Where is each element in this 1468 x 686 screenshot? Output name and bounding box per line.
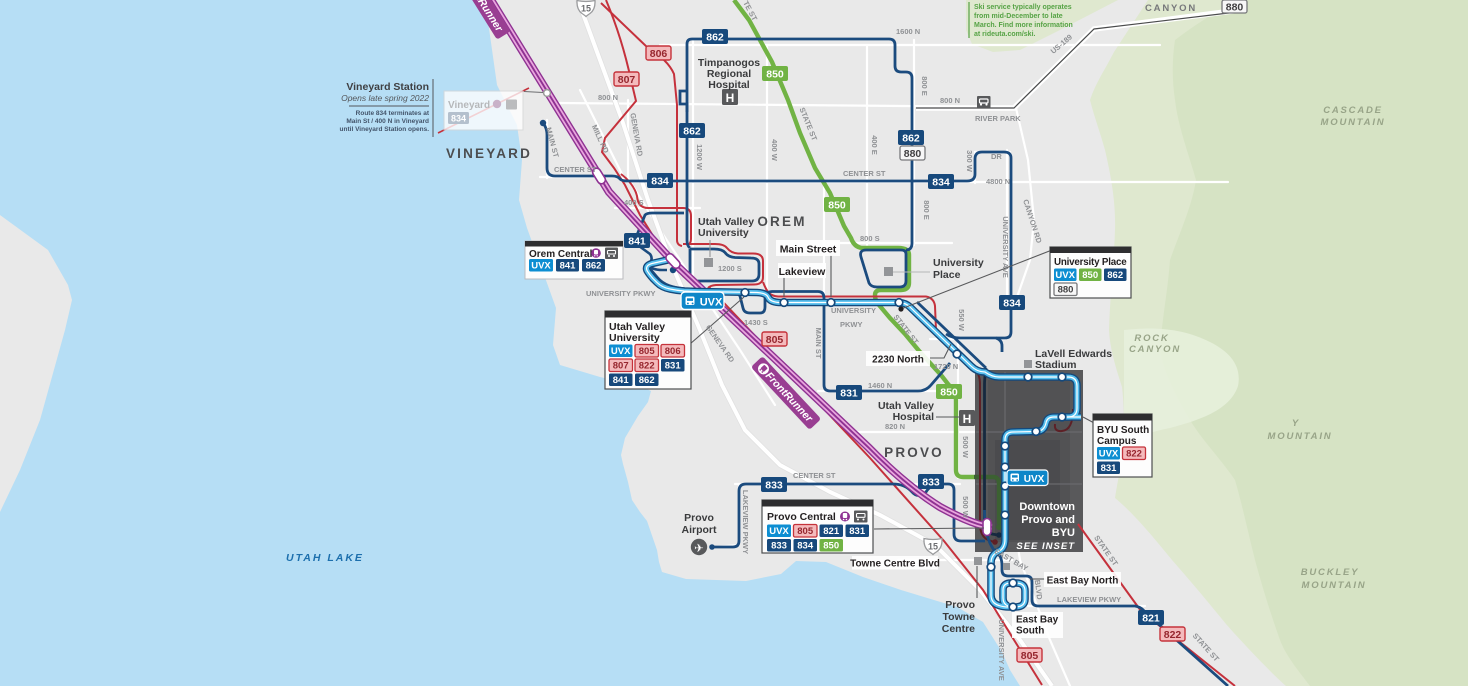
svg-text:Stadium: Stadium: [1035, 359, 1076, 371]
svg-text:850: 850: [828, 200, 846, 212]
svg-text:Provo: Provo: [945, 599, 975, 611]
svg-text:Lakeview: Lakeview: [779, 266, 827, 278]
svg-text:SEE INSET: SEE INSET: [1016, 541, 1075, 552]
svg-text:833: 833: [771, 541, 787, 552]
svg-text:1460 N: 1460 N: [868, 381, 892, 390]
svg-text:University: University: [698, 227, 749, 239]
svg-text:CANYON: CANYON: [1129, 344, 1181, 355]
svg-text:862: 862: [706, 32, 724, 44]
svg-text:850: 850: [766, 69, 784, 81]
svg-text:833: 833: [922, 477, 940, 489]
svg-text:834: 834: [451, 114, 466, 124]
svg-text:LAKEVIEW PKWY: LAKEVIEW PKWY: [1057, 595, 1121, 604]
svg-text:841: 841: [613, 375, 630, 386]
svg-text:Hospital: Hospital: [708, 79, 750, 91]
svg-text:from mid-December to late: from mid-December to late: [974, 13, 1063, 20]
svg-text:850: 850: [1082, 270, 1098, 281]
svg-text:Airport: Airport: [682, 524, 718, 536]
svg-text:821: 821: [823, 526, 840, 537]
svg-text:15: 15: [581, 4, 591, 14]
svg-text:805: 805: [766, 334, 784, 346]
svg-text:880: 880: [1058, 285, 1074, 296]
svg-text:400 E: 400 E: [870, 135, 879, 155]
svg-text:H: H: [726, 91, 735, 105]
svg-text:822: 822: [1126, 449, 1142, 460]
svg-text:850: 850: [823, 541, 839, 552]
svg-text:831: 831: [849, 526, 866, 537]
svg-text:Place: Place: [933, 269, 961, 281]
svg-text:UNIVERSITY PKWY: UNIVERSITY PKWY: [586, 289, 655, 298]
svg-text:Route 834 terminates at: Route 834 terminates at: [356, 110, 430, 117]
svg-text:South: South: [1016, 626, 1044, 637]
svg-text:UVX: UVX: [1099, 449, 1119, 460]
svg-text:UVX: UVX: [611, 346, 631, 357]
svg-text:834: 834: [797, 541, 814, 552]
svg-text:806: 806: [650, 48, 668, 60]
svg-text:DR: DR: [991, 152, 1002, 161]
svg-text:BYU South: BYU South: [1097, 425, 1149, 436]
svg-text:805: 805: [639, 346, 656, 357]
svg-text:862: 862: [683, 126, 701, 138]
svg-text:ROCK: ROCK: [1134, 333, 1169, 344]
svg-text:834: 834: [651, 176, 669, 188]
svg-text:831: 831: [840, 388, 858, 400]
svg-text:Opens late spring 2022: Opens late spring 2022: [341, 93, 429, 103]
svg-text:CENTER ST: CENTER ST: [793, 471, 836, 480]
svg-text:UNIVERSITY AVE: UNIVERSITY AVE: [1001, 216, 1010, 278]
svg-text:841: 841: [560, 261, 577, 272]
svg-text:807: 807: [613, 361, 629, 372]
svg-text:Towne: Towne: [943, 611, 976, 623]
svg-text:862: 862: [586, 261, 602, 272]
svg-text:500 W: 500 W: [961, 436, 970, 459]
svg-text:Campus: Campus: [1097, 436, 1137, 447]
svg-text:Provo: Provo: [684, 512, 714, 524]
svg-text:Downtown: Downtown: [1019, 501, 1075, 513]
svg-text:PKWY: PKWY: [840, 320, 863, 329]
svg-text:862: 862: [902, 133, 920, 145]
svg-text:841: 841: [628, 236, 646, 248]
svg-text:PROVO: PROVO: [884, 445, 944, 460]
svg-text:UNIVERSITY AVE: UNIVERSITY AVE: [997, 619, 1006, 681]
svg-text:Main St / 400 N in Vineyard: Main St / 400 N in Vineyard: [346, 118, 429, 125]
svg-text:UVX: UVX: [700, 297, 723, 309]
svg-text:880: 880: [1226, 2, 1244, 14]
svg-text:University: University: [609, 332, 660, 344]
svg-text:University Place: University Place: [1054, 257, 1127, 268]
svg-text:BYU: BYU: [1052, 527, 1075, 539]
svg-text:822: 822: [1164, 629, 1182, 641]
svg-text:880: 880: [904, 148, 922, 160]
svg-text:833: 833: [765, 480, 783, 492]
svg-text:Orem Central: Orem Central: [529, 249, 593, 260]
svg-text:CANYON: CANYON: [1145, 3, 1197, 14]
svg-text:862: 862: [639, 375, 655, 386]
svg-text:CENTER ST: CENTER ST: [554, 165, 597, 174]
svg-text:CENTER ST: CENTER ST: [843, 169, 886, 178]
svg-text:800 E: 800 E: [920, 76, 929, 96]
svg-text:831: 831: [665, 361, 682, 372]
svg-text:UTAH LAKE: UTAH LAKE: [286, 552, 364, 564]
svg-text:1720 N: 1720 N: [934, 362, 958, 371]
svg-text:✈: ✈: [694, 543, 704, 555]
svg-text:H: H: [963, 412, 972, 426]
svg-text:CASCADE: CASCADE: [1323, 105, 1383, 116]
svg-text:Ski service typically operates: Ski service typically operates: [974, 4, 1072, 11]
svg-text:2230 North: 2230 North: [872, 355, 924, 366]
svg-text:UNIVERSITY: UNIVERSITY: [831, 306, 876, 315]
svg-text:1600 N: 1600 N: [896, 27, 920, 36]
svg-text:MAIN ST: MAIN ST: [814, 328, 823, 359]
svg-text:MOUNTAIN: MOUNTAIN: [1321, 117, 1386, 128]
svg-text:MOUNTAIN: MOUNTAIN: [1268, 431, 1333, 442]
svg-text:4800 N: 4800 N: [986, 177, 1010, 186]
svg-text:300 W: 300 W: [965, 150, 974, 173]
svg-text:Main Street: Main Street: [780, 244, 837, 256]
svg-text:800 S: 800 S: [860, 234, 880, 243]
svg-text:UVX: UVX: [1055, 270, 1075, 281]
svg-text:until Vineyard Station opens.: until Vineyard Station opens.: [340, 126, 430, 133]
svg-text:15: 15: [928, 542, 938, 552]
svg-text:820 N: 820 N: [885, 422, 905, 431]
svg-text:Y: Y: [1292, 418, 1300, 429]
svg-text:834: 834: [932, 177, 950, 189]
svg-text:OREM: OREM: [757, 214, 806, 229]
svg-text:Vineyard Station: Vineyard Station: [346, 81, 429, 93]
svg-text:500 W: 500 W: [961, 496, 970, 519]
svg-text:800 E: 800 E: [922, 200, 931, 220]
svg-text:Towne Centre Blvd: Towne Centre Blvd: [850, 559, 940, 570]
svg-text:400 S: 400 S: [624, 198, 644, 207]
svg-text:1200 W: 1200 W: [695, 144, 704, 171]
svg-text:821: 821: [1142, 613, 1160, 625]
svg-text:RIVER PARK: RIVER PARK: [975, 114, 1021, 123]
svg-text:BUCKLEY: BUCKLEY: [1301, 567, 1360, 578]
svg-text:550 W: 550 W: [957, 309, 966, 332]
svg-text:LAKEVIEW PKWY: LAKEVIEW PKWY: [741, 490, 750, 554]
svg-text:Provo Central: Provo Central: [767, 511, 836, 523]
svg-text:805: 805: [1021, 650, 1039, 662]
svg-text:805: 805: [797, 526, 814, 537]
svg-text:March. Find more information: March. Find more information: [974, 22, 1073, 29]
svg-text:1200 S: 1200 S: [718, 264, 742, 273]
svg-text:VINEYARD: VINEYARD: [446, 146, 532, 161]
svg-text:400 W: 400 W: [770, 139, 779, 162]
svg-text:UVX: UVX: [531, 261, 551, 272]
svg-text:Vineyard: Vineyard: [448, 100, 490, 111]
svg-text:UVX: UVX: [769, 526, 789, 537]
svg-text:UVX: UVX: [1024, 474, 1045, 485]
svg-text:East Bay North: East Bay North: [1047, 576, 1119, 587]
svg-text:822: 822: [639, 361, 655, 372]
svg-text:1430 S: 1430 S: [744, 318, 768, 327]
svg-text:MOUNTAIN: MOUNTAIN: [1302, 580, 1367, 591]
svg-text:University: University: [933, 257, 984, 269]
svg-text:834: 834: [1003, 298, 1021, 310]
svg-text:831: 831: [1101, 463, 1118, 474]
svg-text:East Bay: East Bay: [1016, 615, 1059, 626]
svg-text:Provo and: Provo and: [1021, 514, 1075, 526]
svg-text:800 N: 800 N: [940, 96, 960, 105]
svg-text:Centre: Centre: [942, 623, 975, 635]
svg-text:807: 807: [618, 74, 636, 86]
svg-text:at rideuta.com/ski.: at rideuta.com/ski.: [974, 31, 1036, 38]
svg-text:800 N: 800 N: [598, 93, 618, 102]
svg-text:850: 850: [940, 387, 958, 399]
svg-text:862: 862: [1107, 270, 1123, 281]
svg-text:806: 806: [665, 346, 681, 357]
